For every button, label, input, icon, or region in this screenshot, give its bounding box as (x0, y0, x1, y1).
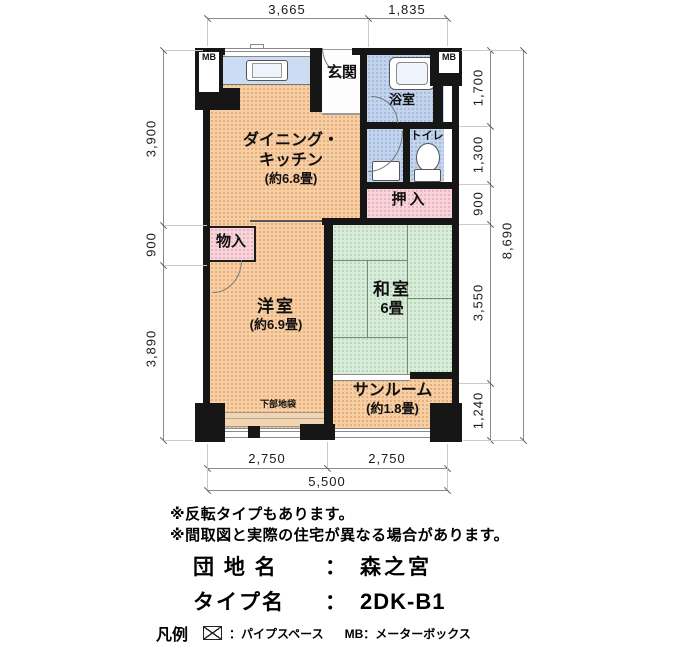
tatami-line (333, 337, 407, 338)
entrance-label: 玄関 (322, 64, 362, 83)
dim-top-2: 1,835 (357, 2, 457, 17)
dim-line-right-outer (523, 50, 524, 440)
extension-line (207, 20, 208, 46)
western-room-name: 洋室 (220, 296, 332, 317)
dk-size: (約6.8畳) (230, 171, 352, 187)
bathroom-label: 浴室 (372, 92, 432, 108)
monoire-label: 物入 (209, 233, 253, 252)
dim-right-1: 1,700 (471, 58, 486, 118)
dim-right-4: 3,550 (471, 273, 486, 333)
extension-line (165, 440, 193, 441)
wall-entrance-left (310, 48, 322, 112)
corner-column-top-left-wing (223, 88, 240, 110)
window-bottom-2 (260, 428, 300, 438)
window-post-small (248, 426, 260, 438)
estate-name-row: 団 地 名 ： 森之宮 (193, 551, 432, 581)
wall-bath-bottom (360, 122, 452, 129)
window-post-center (300, 424, 335, 440)
oshiire-label: 押入 (367, 191, 452, 210)
meter-box-left: MB (199, 52, 219, 92)
window-bottom-1 (225, 428, 248, 438)
extension-line (368, 20, 369, 47)
extension-line (165, 265, 207, 266)
window-top (225, 48, 312, 57)
corner-column-bottom-left (195, 403, 225, 442)
extension-line (207, 444, 208, 490)
wall-bath-right-bar (433, 85, 443, 123)
extension-line (165, 50, 203, 51)
japanese-room-label: 和室 6畳 (352, 279, 432, 319)
type-name-label: タイプ名 (193, 586, 311, 616)
dining-kitchen-label: ダイニング・ キッチン (約6.8畳) (230, 131, 352, 187)
kitchen-sink-inner (252, 63, 282, 78)
estate-name-label: 団 地 名 (193, 551, 311, 581)
dim-left-3: 3,890 (144, 319, 159, 379)
legend-pipe-space-label: ：パイプスペース (229, 625, 324, 642)
sunroom-name: サンルーム (333, 381, 452, 401)
dim-right-3: 900 (471, 174, 486, 234)
extension-line (447, 444, 448, 490)
lower-cabinet-label: 下部地袋 (250, 399, 306, 410)
legend-title: 凡例 (156, 621, 188, 645)
tatami-line (333, 260, 407, 261)
partition-dk-western (250, 220, 322, 222)
wall-right (452, 48, 459, 442)
dk-name-line2: キッチン (230, 151, 352, 171)
dim-left-2: 900 (144, 215, 159, 275)
extension-line (327, 442, 328, 468)
meter-box-left-label: MB (202, 52, 216, 62)
western-room-size: (約6.9畳) (220, 317, 332, 333)
meter-box-right-label: MB (442, 52, 456, 62)
dim-bottom-total: 5,500 (277, 474, 377, 489)
toilet-tank-icon (414, 169, 441, 182)
sunroom-glass-door (333, 374, 410, 381)
toilet-label: トイレ (403, 130, 451, 144)
legend-row: 凡例 ：パイプスペース MB：メーターボックス (156, 621, 471, 645)
extension-line (165, 225, 207, 226)
dim-line-bottom-2 (207, 490, 447, 491)
pipe-space-icon (203, 626, 222, 640)
japanese-room-size: 6畳 (352, 300, 432, 319)
bathtub-inner (396, 62, 428, 85)
type-name-row: タイプ名 ： 2DK-B1 (193, 586, 445, 616)
sunroom-label: サンルーム (約1.8畳) (333, 381, 452, 417)
dim-top-1: 3,665 (237, 2, 337, 17)
legend-mb-label: MB：メーターボックス (345, 625, 471, 642)
wall-sunroom-right (410, 372, 452, 379)
type-name-separator: ： (325, 586, 346, 616)
wall-oshiire-top (360, 182, 452, 189)
estate-name-separator: ： (325, 551, 346, 581)
type-name-value: 2DK-B1 (360, 589, 445, 615)
extension-line (447, 20, 448, 46)
estate-name-value: 森之宮 (360, 551, 432, 581)
meter-box-right: MB (439, 52, 459, 73)
note-line-1: ※反転タイプもあります。 (170, 503, 354, 524)
dim-line-top (207, 18, 447, 19)
dim-left-1: 3,900 (144, 109, 159, 169)
note-line-2: ※間取図と実際の住宅が異なる場合があります。 (170, 524, 509, 545)
dim-bottom-1: 2,750 (217, 451, 317, 466)
dim-right-5: 1,240 (471, 381, 486, 441)
dim-bottom-2: 2,750 (337, 451, 437, 466)
western-room-label: 洋室 (約6.9畳) (220, 296, 332, 334)
sunroom-size: (約1.8畳) (333, 401, 452, 417)
dk-name-line1: ダイニング・ (230, 131, 352, 151)
window-bottom-3 (335, 428, 430, 438)
floor-plan-page: MB MB ダイニング・ キッチン (約6.8畳) 玄関 浴室 トイレ 押入 物… (0, 0, 700, 650)
toilet-bowl-icon (416, 143, 440, 172)
dim-right-total: 8,690 (500, 211, 515, 271)
extension-line (461, 50, 523, 51)
japanese-room-name: 和室 (352, 279, 432, 300)
wall-japanese-room-top (322, 218, 452, 225)
dim-line-left (163, 50, 164, 440)
